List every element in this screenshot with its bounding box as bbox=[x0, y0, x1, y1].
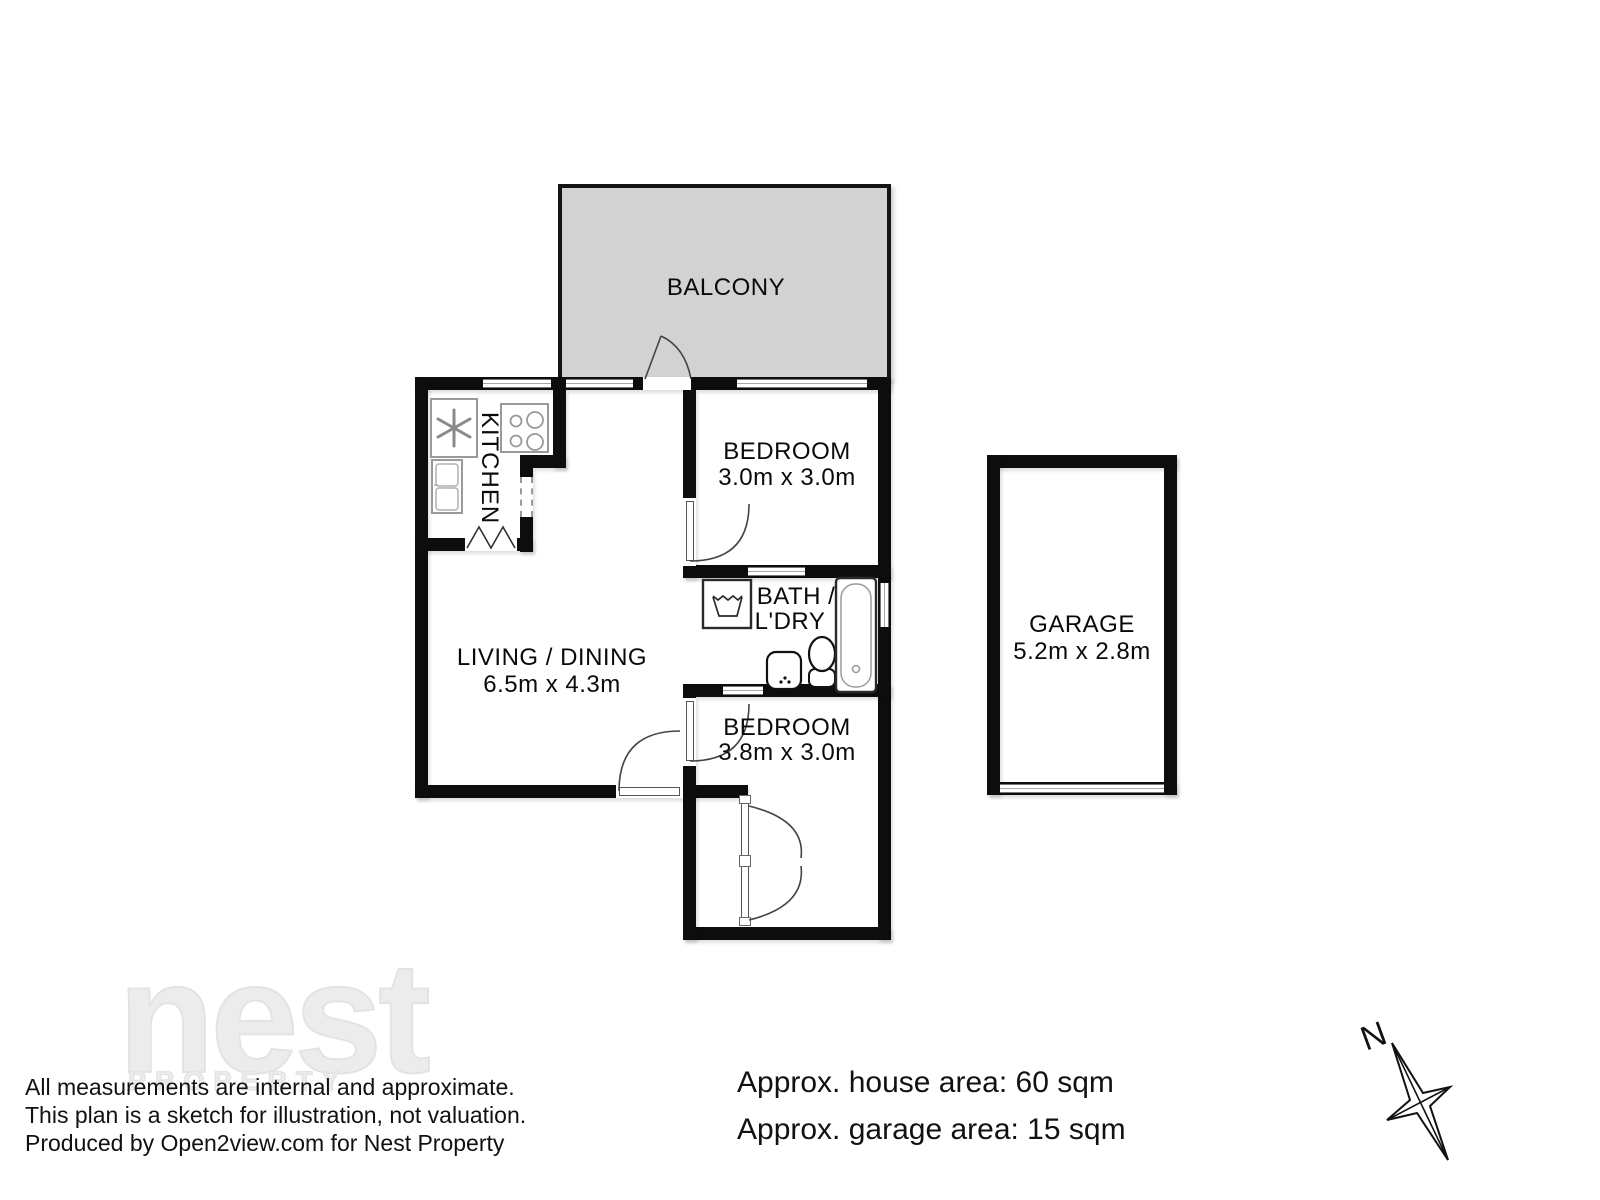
entry-door-arc bbox=[619, 731, 680, 791]
living-label: LIVING / DINING bbox=[457, 644, 647, 672]
compass-cross-lines bbox=[1387, 1043, 1450, 1160]
window-kitchen bbox=[483, 379, 551, 388]
wall-garage-left bbox=[987, 455, 1000, 795]
door-leaf-entry bbox=[619, 787, 680, 796]
garage-label: GARAGE bbox=[1029, 611, 1135, 639]
bedroom1-label: BEDROOM bbox=[723, 438, 851, 466]
living-dims: 6.5m x 4.3m bbox=[483, 671, 621, 699]
window-bath-bottom bbox=[723, 686, 763, 695]
sink-tap-dots bbox=[779, 676, 790, 683]
house-area-text: Approx. house area: 60 sqm bbox=[737, 1066, 1114, 1100]
wall-bedroom2-bottom bbox=[683, 927, 891, 940]
window-bath-top bbox=[748, 567, 805, 576]
kitchen-label: KITCHEN bbox=[475, 412, 503, 524]
window-bath-right bbox=[880, 583, 889, 627]
robe-door-arc-lower bbox=[749, 866, 801, 920]
bathtub-icon bbox=[836, 578, 876, 692]
bath-label-line2: L'DRY bbox=[755, 608, 826, 636]
fan-icon bbox=[438, 410, 470, 446]
window-living-balcony bbox=[566, 379, 633, 388]
laundry-tub-icon bbox=[703, 580, 751, 628]
fridge-doors bbox=[434, 464, 458, 510]
bedroom1-dims: 3.0m x 3.0m bbox=[718, 464, 856, 492]
garage-area-text: Approx. garage area: 15 sqm bbox=[737, 1113, 1126, 1147]
fridge-icon bbox=[432, 460, 462, 513]
bathtub-drain bbox=[853, 666, 860, 673]
robe-hinge-middle bbox=[739, 855, 751, 867]
door-gap-balcony bbox=[643, 377, 691, 390]
wall-bath-bottom bbox=[683, 684, 891, 697]
kitchen-servery-opening bbox=[520, 477, 533, 517]
balcony-label: BALCONY bbox=[667, 274, 785, 302]
cooktop-burners bbox=[511, 412, 544, 450]
bathtub-inner bbox=[841, 584, 871, 687]
door-leaf-bedroom2 bbox=[686, 701, 694, 761]
bedroom2-dims: 3.8m x 3.0m bbox=[718, 739, 856, 767]
laundry-tub-glyph bbox=[713, 596, 742, 616]
door-gap-kitchen-bifold bbox=[465, 538, 517, 551]
wall-left bbox=[415, 377, 428, 798]
disclaimer-line-1: All measurements are internal and approx… bbox=[25, 1074, 515, 1101]
compass-north-label: N bbox=[1356, 1014, 1392, 1058]
bedroom1-door-arc bbox=[690, 504, 749, 561]
robe-door-arc-upper bbox=[749, 806, 801, 858]
wall-kitchen-notch bbox=[520, 455, 566, 468]
wall-garage-right bbox=[1164, 455, 1177, 795]
bedroom2-label: BEDROOM bbox=[723, 714, 851, 742]
floor-plan-page: N BALCONY KITCHEN BEDROOM 3.0m x 3.0m BA… bbox=[0, 0, 1600, 1200]
cooktop-icon bbox=[501, 404, 548, 452]
compass: N bbox=[1356, 1014, 1450, 1160]
robe-hinge-top bbox=[739, 795, 751, 804]
garage-dims: 5.2m x 2.8m bbox=[1013, 638, 1151, 666]
compass-star bbox=[1387, 1043, 1450, 1160]
door-leaf-bedroom1 bbox=[686, 501, 694, 561]
disclaimer-line-3: Produced by Open2view.com for Nest Prope… bbox=[25, 1130, 504, 1157]
fan-appliance bbox=[431, 399, 477, 457]
robe-hinge-bottom bbox=[739, 917, 751, 926]
bath-label-line1: BATH / bbox=[757, 583, 836, 611]
garage-door bbox=[1000, 784, 1164, 793]
wall-right bbox=[878, 377, 891, 940]
toilet-icon bbox=[809, 637, 835, 671]
window-bedroom1-balcony bbox=[737, 379, 867, 388]
wall-garage-top bbox=[987, 455, 1177, 468]
disclaimer-line-2: This plan is a sketch for illustration, … bbox=[25, 1102, 526, 1129]
